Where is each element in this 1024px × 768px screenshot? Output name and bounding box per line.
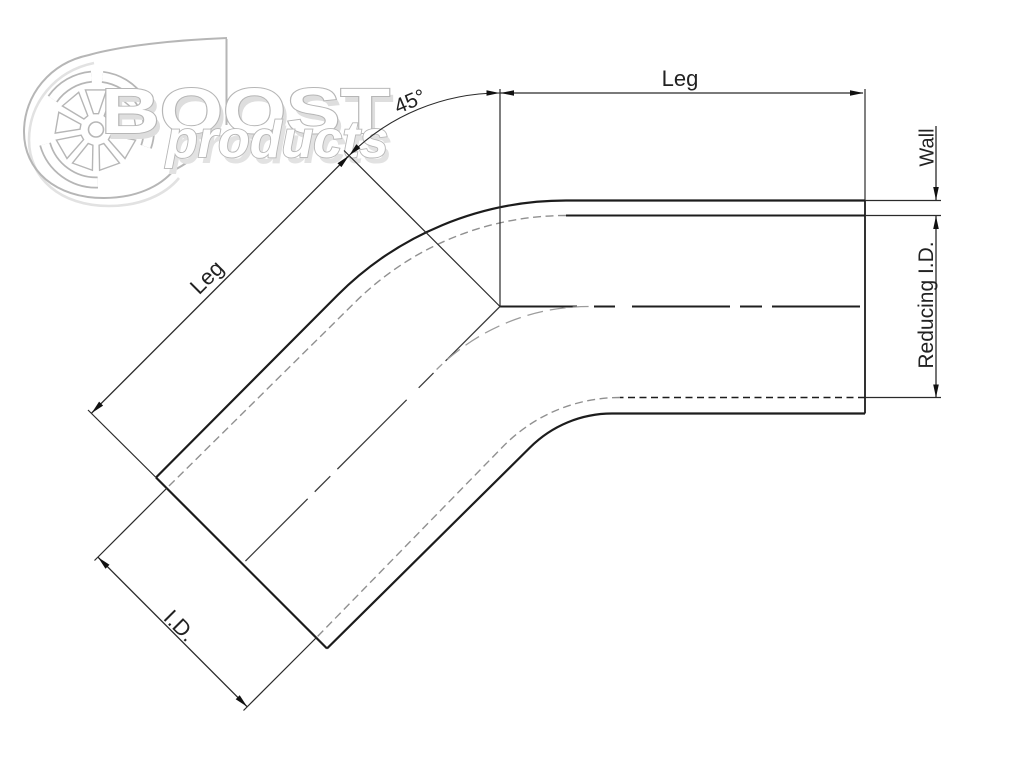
svg-text:Wall: Wall [917,128,939,166]
svg-text:products: products [164,111,388,169]
svg-text:Leg: Leg [662,66,699,91]
svg-text:Reducing I.D.: Reducing I.D. [915,241,938,368]
